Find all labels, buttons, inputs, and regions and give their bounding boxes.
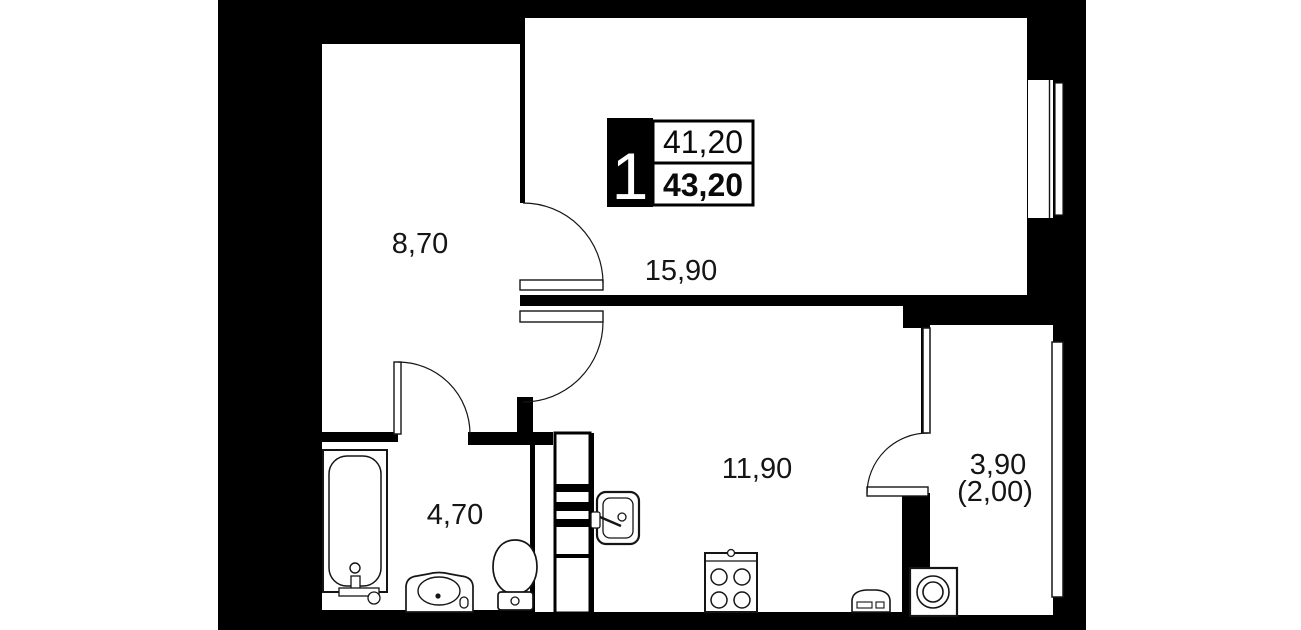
washing-machine-icon [910,568,957,616]
kitchen-sink-icon [591,492,639,544]
toilet-icon [493,540,537,610]
wall-hall-kitchen-stub [517,397,533,435]
unit-info-box: 1 41,20 43,20 [607,118,753,213]
vent-shaft-band [555,484,590,492]
wall-bathroom-top-right [468,432,553,445]
vent-shaft [555,433,590,613]
door-leaf-kitchen [520,311,603,322]
wall-balcony-top [927,295,1060,325]
label-bathroom-area: 4,70 [427,499,483,531]
radiator-icon [852,590,890,612]
vent-shaft-divider [555,554,590,558]
unit-total-area: 43,20 [663,167,743,203]
opening-hall-bathroom [398,431,468,443]
door-leaf-living [520,280,603,290]
wall-bathroom-top-left [322,432,398,442]
unit-rooms-count: 1 [612,139,649,213]
unit-living-area: 41,20 [663,124,743,160]
stove-icon [705,550,757,613]
label-balcony-area-reduced: (2,00) [957,476,1033,508]
vent-shaft-band [555,502,590,511]
room-living [525,18,1027,295]
balcony-window [1052,342,1063,597]
bathroom-sink-icon [406,573,473,613]
label-living-area: 15,90 [645,255,718,287]
opening-kitchen-balcony [921,433,930,493]
living-window-outer-sash [1055,83,1063,215]
label-hall-area: 8,70 [392,228,448,260]
wall-balcony-stub-top [903,295,927,328]
floor-plan: 1 41,20 43,20 8,70 15,90 11,90 4,70 3,90… [0,0,1301,630]
bathtub-icon [323,450,387,604]
label-kitchen-area: 11,90 [722,453,792,485]
door-leaf-balcony [867,487,928,496]
floor-plan-canvas: 1 41,20 43,20 8,70 15,90 11,90 4,70 3,90… [0,0,1301,630]
door-leaf-bathroom [394,362,401,434]
vent-shaft-band [555,519,590,527]
balcony-partition-window [923,328,930,433]
